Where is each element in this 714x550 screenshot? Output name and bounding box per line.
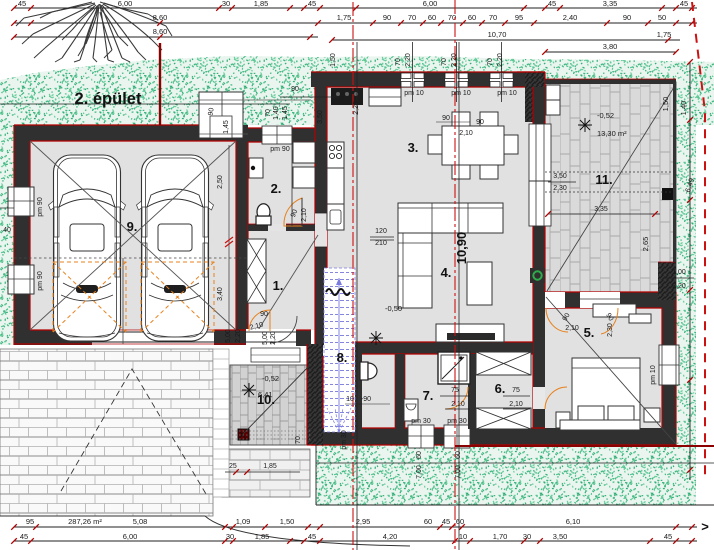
- svg-text:25: 25: [229, 463, 237, 470]
- svg-text:2,20: 2,20: [451, 53, 458, 67]
- svg-text:2,20: 2,20: [497, 53, 504, 67]
- svg-text:3.: 3.: [408, 140, 419, 155]
- svg-text:2. épület: 2. épület: [75, 90, 142, 108]
- svg-text:pm 90: pm 90: [270, 146, 290, 153]
- svg-text:7,00: 7,00: [455, 465, 462, 479]
- svg-text:1,70: 1,70: [493, 532, 508, 541]
- svg-text:70: 70: [441, 58, 448, 66]
- svg-text:1,40: 1,40: [273, 106, 280, 120]
- svg-text:30: 30: [226, 532, 234, 541]
- svg-text:pm 90: pm 90: [37, 271, 44, 291]
- svg-text:6,41: 6,41: [258, 390, 273, 399]
- svg-text:1,09: 1,09: [236, 517, 251, 526]
- svg-text:95: 95: [26, 517, 34, 526]
- svg-text:2,65: 2,65: [641, 237, 650, 252]
- svg-text:-0,52: -0,52: [597, 111, 614, 120]
- svg-text:4.: 4.: [441, 265, 452, 280]
- svg-text:5,00: 5,00: [225, 329, 232, 343]
- svg-text:1,00: 1,00: [672, 269, 686, 276]
- svg-text:2,20: 2,20: [672, 283, 686, 290]
- svg-text:3,50: 3,50: [317, 110, 324, 124]
- svg-text:60: 60: [468, 13, 476, 22]
- svg-text:2,30: 2,30: [553, 185, 567, 192]
- svg-text:7,00: 7,00: [416, 465, 423, 479]
- svg-text:60: 60: [456, 517, 464, 526]
- svg-text:2,20: 2,20: [235, 329, 242, 343]
- svg-text:45: 45: [680, 0, 688, 8]
- svg-text:70: 70: [489, 13, 497, 22]
- svg-text:60: 60: [455, 451, 462, 459]
- svg-text:13,30 m²: 13,30 m²: [597, 129, 627, 138]
- svg-text:3,35: 3,35: [594, 206, 608, 213]
- svg-text:70: 70: [487, 58, 494, 66]
- svg-text:50: 50: [658, 13, 666, 22]
- svg-text:6,00: 6,00: [123, 532, 138, 541]
- svg-text:2,10: 2,10: [301, 208, 308, 222]
- svg-text:10: 10: [459, 532, 467, 541]
- svg-text:70: 70: [408, 13, 416, 22]
- svg-text:1,45: 1,45: [282, 106, 289, 120]
- svg-text:2,20: 2,20: [405, 53, 412, 67]
- svg-text:pm 30: pm 30: [447, 418, 467, 425]
- svg-text:1,85: 1,85: [263, 463, 277, 470]
- svg-text:-90: -90: [361, 396, 371, 403]
- svg-text:7.: 7.: [423, 388, 434, 403]
- svg-text:pm 10: pm 10: [404, 90, 424, 97]
- svg-text:-0,52: -0,52: [262, 374, 279, 383]
- svg-text:30: 30: [222, 0, 230, 8]
- svg-text:1,85: 1,85: [254, 0, 269, 8]
- svg-text:10,70: 10,70: [488, 30, 507, 39]
- svg-text:90: 90: [260, 311, 268, 318]
- svg-text:10,90: 10,90: [454, 232, 469, 265]
- svg-text:90: 90: [207, 107, 215, 116]
- svg-text:95: 95: [515, 13, 523, 22]
- svg-text:6,00: 6,00: [423, 0, 438, 8]
- svg-text:11.: 11.: [595, 172, 612, 187]
- svg-text:1,50: 1,50: [661, 97, 670, 112]
- svg-text:45: 45: [664, 532, 672, 541]
- svg-text:75: 75: [512, 387, 520, 394]
- svg-text:2,10: 2,10: [565, 325, 579, 332]
- svg-text:2,20: 2,20: [353, 101, 360, 115]
- svg-text:-0,50: -0,50: [385, 304, 402, 313]
- svg-text:90: 90: [442, 115, 450, 122]
- svg-text:1,50: 1,50: [330, 53, 337, 67]
- svg-text:70: 70: [295, 436, 302, 444]
- svg-text:1,85: 1,85: [255, 532, 270, 541]
- svg-text:1,45: 1,45: [223, 120, 230, 134]
- svg-text:1,75: 1,75: [337, 13, 352, 22]
- svg-text:2,50: 2,50: [217, 175, 224, 189]
- svg-text:6,10: 6,10: [566, 517, 581, 526]
- svg-text:3,50: 3,50: [553, 173, 567, 180]
- svg-text:8,60: 8,60: [153, 27, 168, 36]
- svg-text:1,75: 1,75: [657, 30, 672, 39]
- svg-text:pm 10: pm 10: [451, 90, 471, 97]
- svg-text:pm 30: pm 30: [341, 430, 348, 450]
- svg-text:3,50: 3,50: [553, 532, 568, 541]
- svg-text:pm 90: pm 90: [37, 197, 44, 217]
- svg-text:40: 40: [3, 227, 11, 234]
- svg-text:45: 45: [442, 517, 450, 526]
- svg-text:9.: 9.: [127, 219, 138, 234]
- svg-text:8,60: 8,60: [153, 13, 168, 22]
- svg-text:5,00: 5,00: [262, 331, 269, 345]
- svg-text:60: 60: [416, 451, 423, 459]
- svg-text:90: 90: [291, 86, 299, 93]
- svg-text:2,10: 2,10: [459, 130, 473, 137]
- svg-text:45: 45: [308, 0, 316, 8]
- svg-text:45: 45: [548, 0, 556, 8]
- svg-text:70: 70: [395, 58, 402, 66]
- svg-text:45: 45: [20, 532, 28, 541]
- svg-text:90: 90: [383, 13, 391, 22]
- svg-text:70: 70: [340, 93, 347, 101]
- svg-text:60: 60: [428, 13, 436, 22]
- svg-text:120: 120: [375, 228, 387, 235]
- svg-text:3,40: 3,40: [217, 287, 224, 301]
- svg-text:3,35: 3,35: [603, 0, 618, 8]
- svg-text:45: 45: [18, 0, 26, 8]
- svg-text:2,40: 2,40: [563, 13, 578, 22]
- svg-text:pm 10: pm 10: [650, 365, 657, 385]
- svg-text:pm 30: pm 30: [411, 418, 431, 425]
- svg-text:5,08: 5,08: [133, 517, 148, 526]
- svg-text:6,00: 6,00: [118, 0, 133, 8]
- svg-text:pm 10: pm 10: [497, 90, 517, 97]
- svg-text:2,10: 2,10: [509, 401, 523, 408]
- svg-text:2.: 2.: [271, 181, 282, 196]
- svg-text:8.: 8.: [337, 350, 348, 365]
- svg-text:2,95: 2,95: [356, 517, 371, 526]
- svg-text:3,80: 3,80: [603, 42, 618, 51]
- svg-text:2,30: 2,30: [607, 323, 614, 337]
- svg-text:30: 30: [523, 532, 531, 541]
- svg-text:287,26 m²: 287,26 m²: [68, 517, 102, 526]
- svg-text:10: 10: [346, 396, 354, 403]
- svg-text:4,20: 4,20: [383, 532, 398, 541]
- svg-text:5.: 5.: [584, 325, 595, 340]
- svg-text:2,10: 2,10: [451, 401, 465, 408]
- svg-text:70: 70: [265, 109, 272, 117]
- svg-text:75: 75: [451, 387, 459, 394]
- svg-text:60: 60: [424, 517, 432, 526]
- svg-text:2,20: 2,20: [270, 331, 277, 345]
- svg-text:6.: 6.: [495, 381, 506, 396]
- svg-text:45: 45: [308, 532, 316, 541]
- svg-text:90: 90: [476, 119, 484, 126]
- svg-text:1,50: 1,50: [280, 517, 295, 526]
- svg-text:>: >: [701, 519, 709, 534]
- svg-text:1,40: 1,40: [679, 101, 688, 116]
- svg-text:1.: 1.: [273, 278, 284, 293]
- svg-text:210: 210: [375, 240, 387, 247]
- svg-text:90: 90: [623, 13, 631, 22]
